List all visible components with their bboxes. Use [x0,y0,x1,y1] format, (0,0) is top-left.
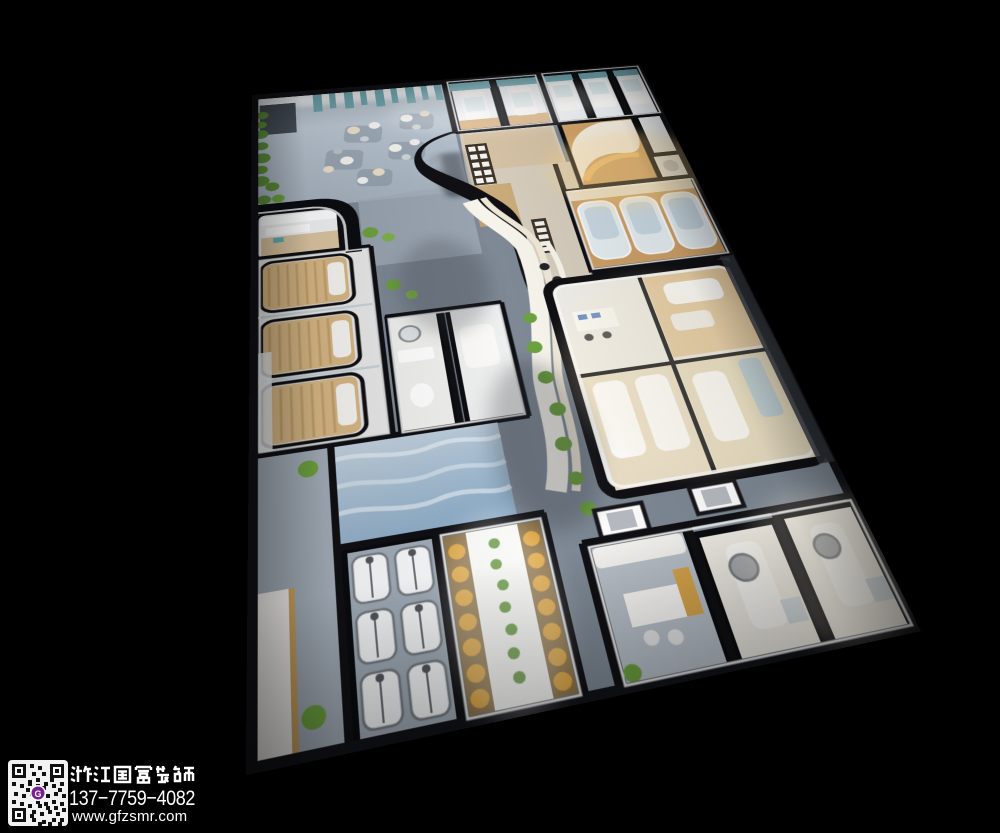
svg-text:G: G [34,789,41,799]
